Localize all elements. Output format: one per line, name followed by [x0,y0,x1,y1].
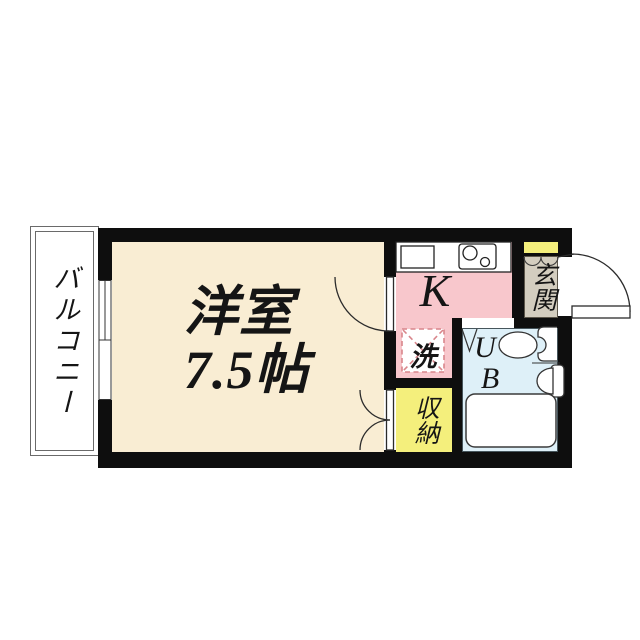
closet-label: 収納 [396,388,452,452]
main-room-name: 洋室 [184,284,310,342]
unit-bath-label: U B [462,333,508,394]
unit-bath-label-b: B [462,364,508,395]
entrance-door-icon [558,254,630,318]
closet-door-icon [360,390,394,450]
washbasin [537,365,564,397]
laundry-label: 洗 [402,335,444,374]
kitchen-door-icon [335,277,394,331]
kitchen-label: K [396,268,474,314]
bathtub [466,394,556,447]
main-room-label: 洋室 7.5帖 [184,284,310,400]
main-room-size: 7.5帖 [184,342,310,400]
fixture-linework [0,0,640,640]
entrance-label: 玄関 [524,256,558,318]
sliding-window-icon [99,281,111,400]
floor-plan: バルコニー [0,0,640,640]
toilet-tank [538,327,557,361]
unit-bath-label-u: U [462,333,508,364]
